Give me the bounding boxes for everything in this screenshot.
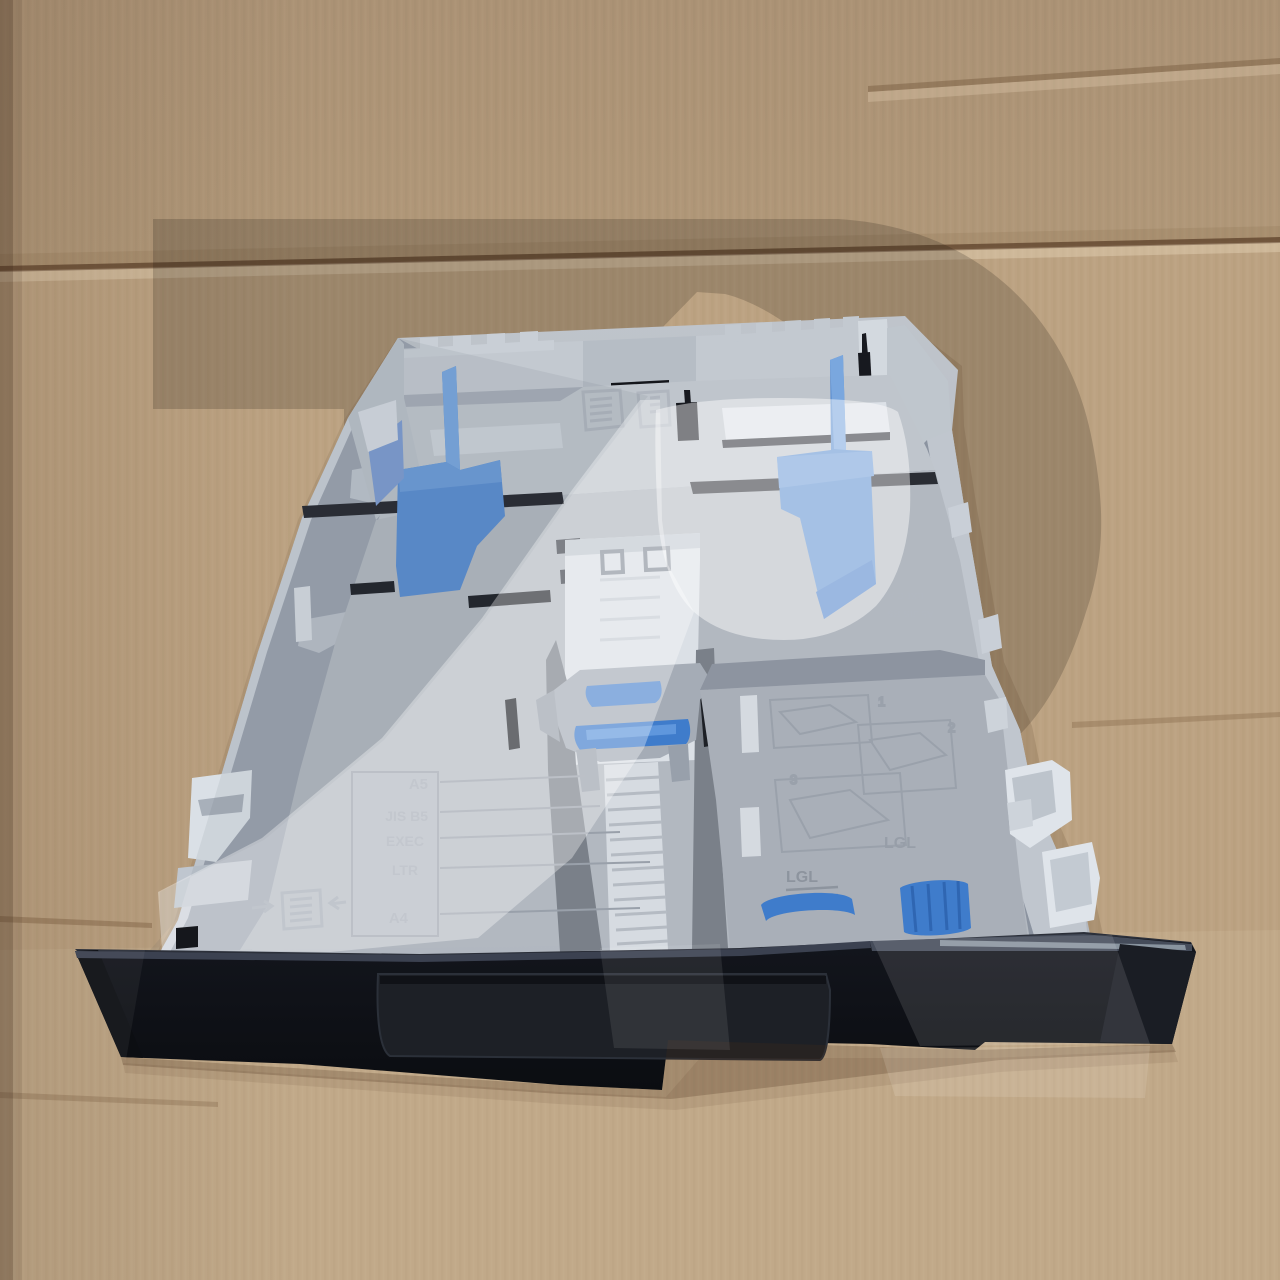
svg-text:EXEC A4: EXEC A4: [881, 589, 924, 601]
svg-text:2: 2: [948, 720, 955, 735]
svg-text:A5 JIS B5: A5 JIS B5: [887, 607, 934, 619]
svg-text:1: 1: [878, 694, 885, 709]
svg-text:3: 3: [790, 772, 797, 787]
svg-text:LGL: LGL: [884, 835, 916, 852]
svg-text:LGL: LGL: [786, 869, 818, 886]
